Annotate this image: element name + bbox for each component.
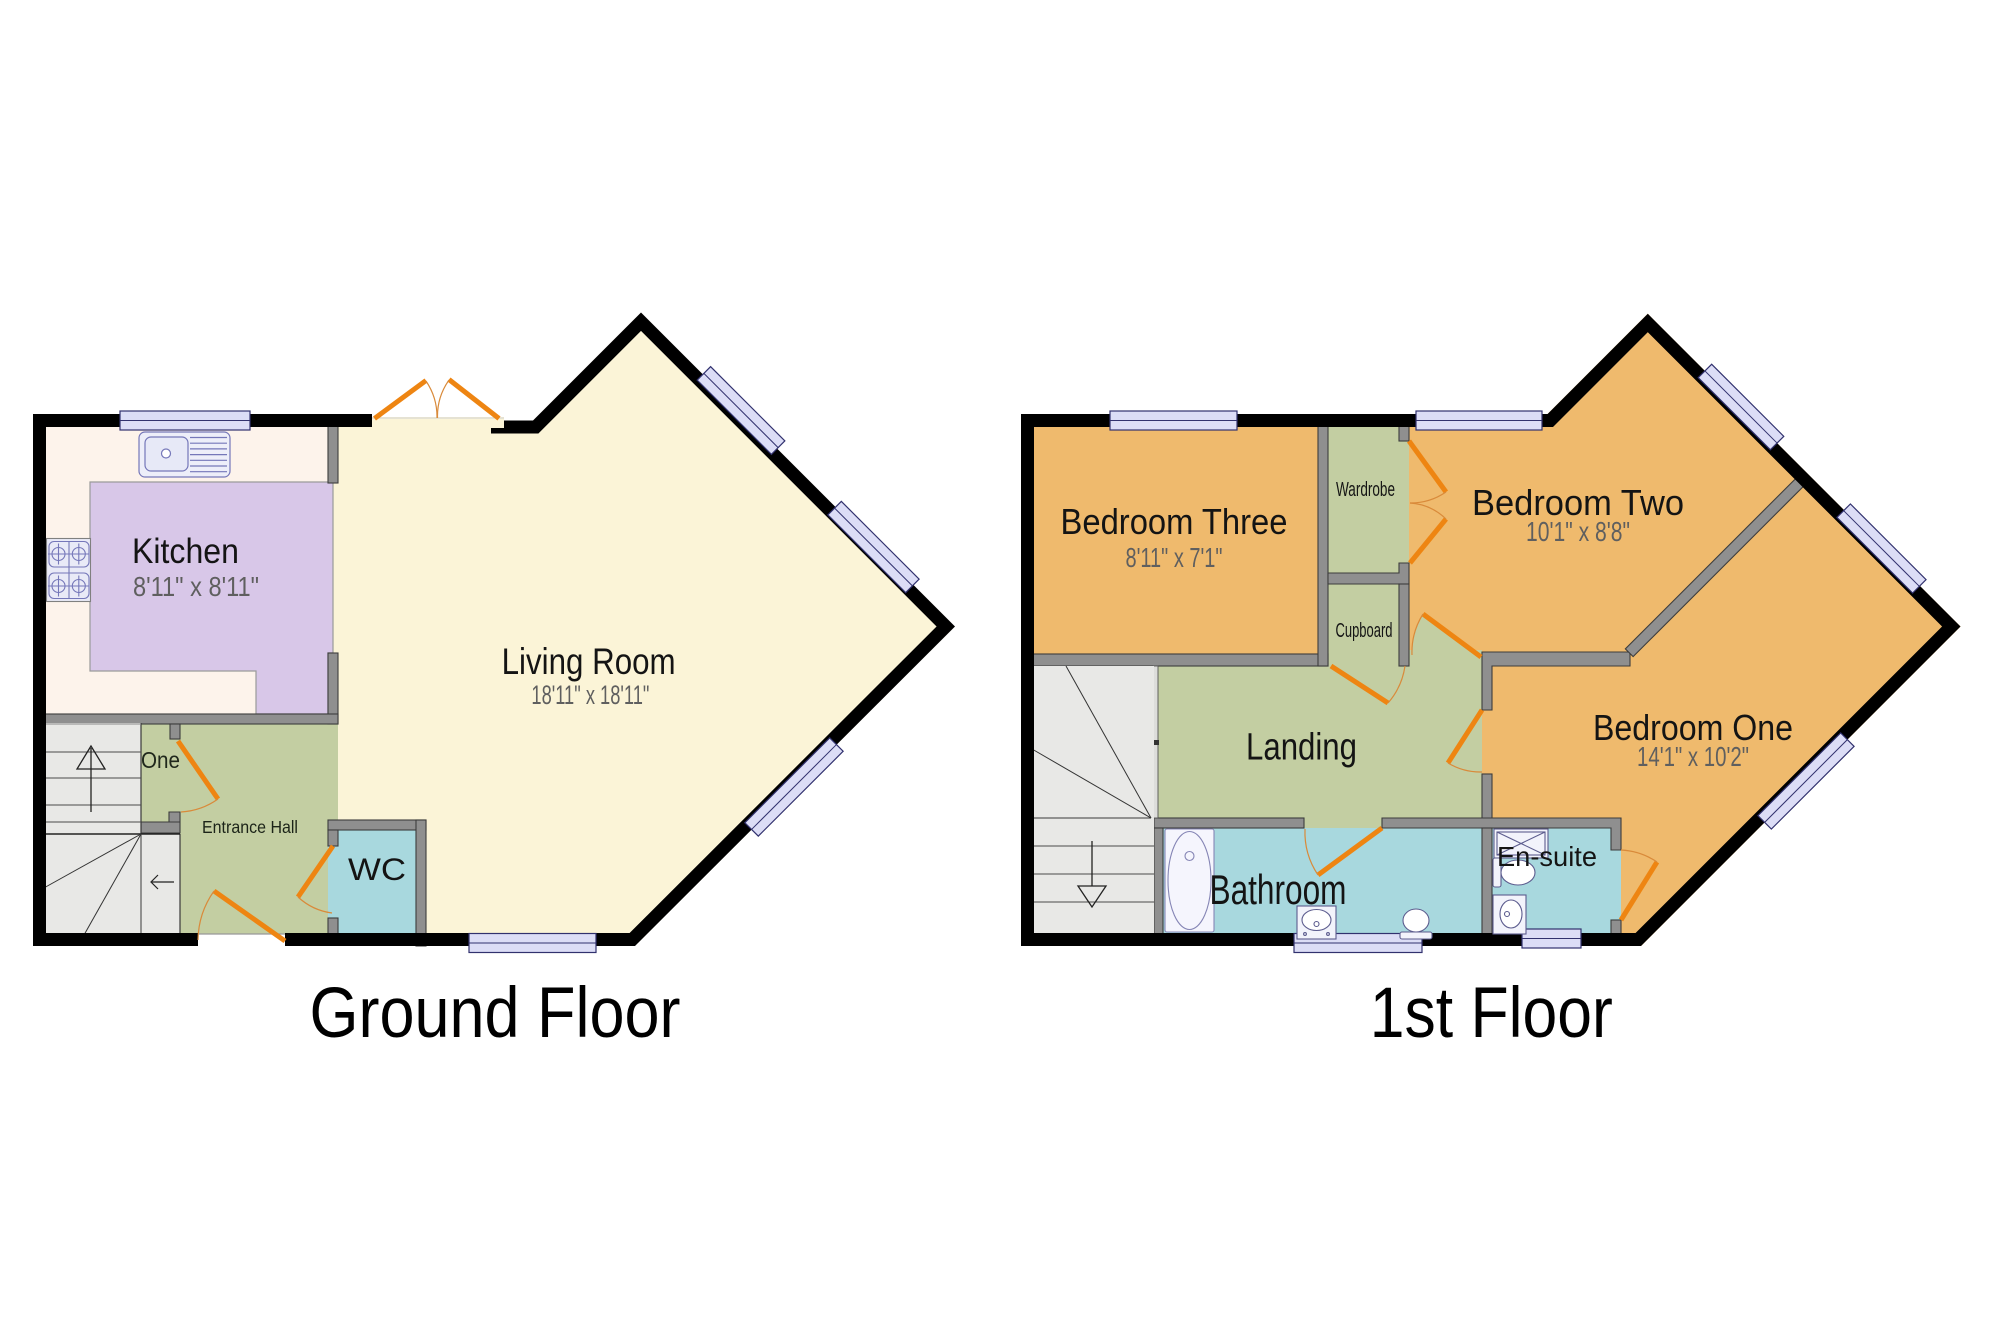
svg-text:One: One (141, 747, 180, 773)
svg-text:18'11" x 18'11": 18'11" x 18'11" (531, 680, 649, 710)
svg-text:8'11" x 8'11": 8'11" x 8'11" (133, 571, 259, 602)
svg-text:Ground Floor: Ground Floor (310, 974, 681, 1053)
svg-text:Kitchen: Kitchen (132, 532, 239, 571)
svg-text:Bedroom Three: Bedroom Three (1061, 501, 1288, 542)
svg-text:WC: WC (348, 851, 406, 887)
svg-text:8'11" x 7'1": 8'11" x 7'1" (1126, 542, 1223, 573)
svg-text:10'1" x 8'8": 10'1" x 8'8" (1526, 516, 1630, 547)
svg-text:Bathroom: Bathroom (1210, 866, 1347, 913)
svg-text:14'1" x 10'2": 14'1" x 10'2" (1637, 741, 1749, 772)
svg-text:En-suite: En-suite (1497, 841, 1597, 872)
svg-text:Landing: Landing (1246, 727, 1357, 769)
svg-text:Entrance Hall: Entrance Hall (202, 817, 298, 837)
svg-text:1st Floor: 1st Floor (1370, 974, 1613, 1053)
svg-text:Cupboard: Cupboard (1336, 619, 1393, 642)
svg-text:Wardrobe: Wardrobe (1336, 478, 1395, 501)
svg-text:Living Room: Living Room (502, 641, 676, 682)
